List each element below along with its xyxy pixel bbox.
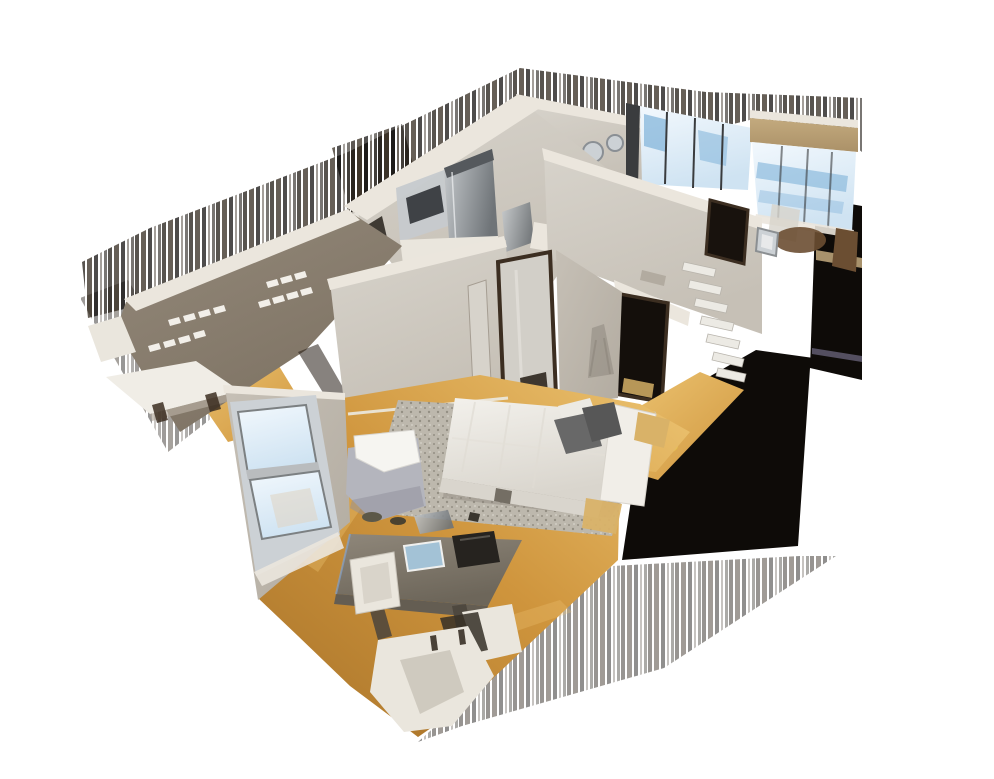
white-chair-left-seat	[360, 562, 392, 604]
clutter-object-2	[390, 517, 406, 525]
bath-doorway	[706, 200, 748, 264]
window-corner-divider	[626, 103, 640, 186]
nightstand-lower	[582, 498, 622, 534]
dollhouse-viewport[interactable]	[0, 0, 994, 779]
round-mirror-small	[607, 135, 623, 151]
dollhouse-scene	[0, 0, 994, 779]
black-bag	[452, 531, 500, 568]
window-a-sky-patch-1	[644, 114, 668, 152]
open-book	[404, 541, 444, 571]
brown-lounge-chair	[774, 227, 826, 253]
brown-cabinet	[832, 228, 858, 272]
clutter-object-1	[362, 512, 382, 522]
